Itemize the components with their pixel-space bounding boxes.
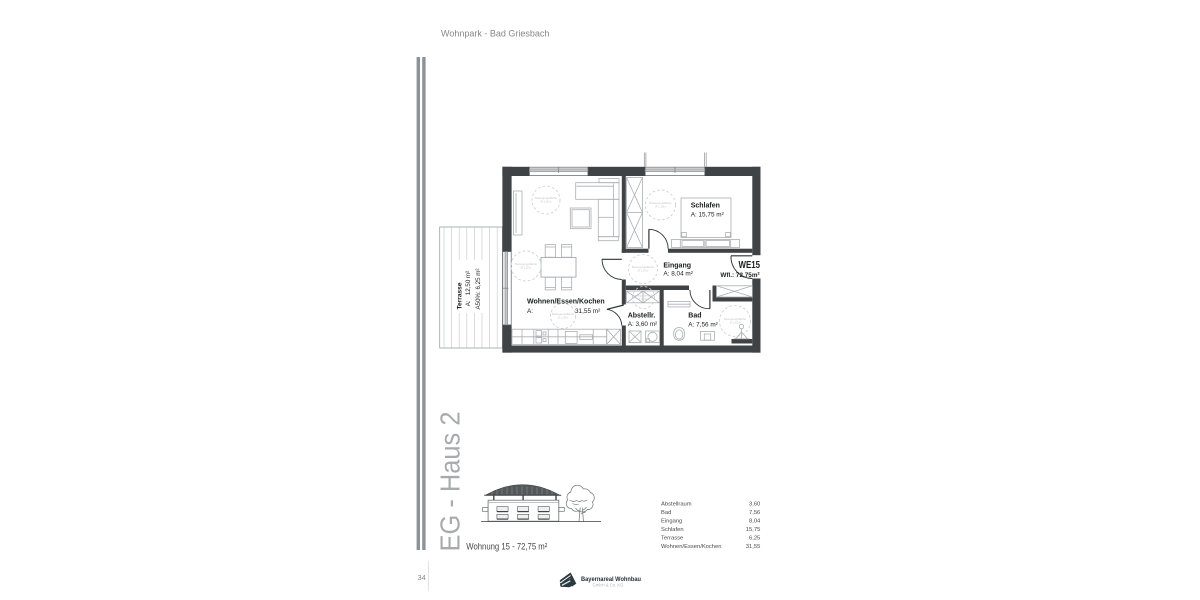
svg-text:Schlafen: Schlafen <box>691 202 720 209</box>
svg-text:A: 8,04 m²: A: 8,04 m² <box>663 271 692 278</box>
svg-text:Terrasse: Terrasse <box>661 535 683 541</box>
svg-text:A: 3,60 m²: A: 3,60 m² <box>628 321 657 328</box>
svg-text:3,60: 3,60 <box>749 502 760 508</box>
svg-text:Wohnpark - Bad Griesbach: Wohnpark - Bad Griesbach <box>441 29 549 39</box>
svg-text:8,04: 8,04 <box>749 519 761 525</box>
svg-text:7,56: 7,56 <box>749 510 760 516</box>
svg-text:Wohnung 15 - 72,75 m²: Wohnung 15 - 72,75 m² <box>466 541 547 552</box>
svg-text:Eingang: Eingang <box>663 263 691 270</box>
svg-text:Bad: Bad <box>661 510 671 516</box>
svg-text:34: 34 <box>418 573 426 582</box>
svg-text:Wfl.: 72,75m²: Wfl.: 72,75m² <box>720 272 760 279</box>
svg-text:Ø 1,20m: Ø 1,20m <box>638 297 649 301</box>
svg-text:Ø 1,20m: Ø 1,20m <box>558 316 569 320</box>
svg-text:A: 7,56 m²: A: 7,56 m² <box>688 322 717 329</box>
svg-text:Ø 1,20m: Ø 1,20m <box>638 269 649 273</box>
svg-text:A50%: 6,25 m²: A50%: 6,25 m² <box>475 269 482 310</box>
svg-text:A: 15,75 m²: A: 15,75 m² <box>691 212 724 219</box>
svg-text:Wohnen/Essen/Kochen: Wohnen/Essen/Kochen <box>527 299 605 306</box>
svg-text:Schlafen: Schlafen <box>661 527 684 533</box>
svg-text:Ø 1,20m: Ø 1,20m <box>655 205 666 209</box>
svg-text:EG - Haus 2: EG - Haus 2 <box>435 412 466 552</box>
svg-text:Terrasse: Terrasse <box>456 282 463 309</box>
svg-text:Ø 1,20m: Ø 1,20m <box>730 321 741 325</box>
svg-text:Ø 1,20m: Ø 1,20m <box>541 200 552 204</box>
svg-text:A:: A: <box>527 308 533 315</box>
svg-text:Wohnen/Essen/Kochen: Wohnen/Essen/Kochen <box>661 544 721 550</box>
svg-text:GmbH & Co. KG: GmbH & Co. KG <box>593 582 624 587</box>
svg-text:6,25: 6,25 <box>749 535 760 541</box>
svg-text:Abstellraum: Abstellraum <box>661 502 692 508</box>
svg-text:31,55 m²: 31,55 m² <box>575 308 600 315</box>
svg-text:WE15: WE15 <box>739 259 761 271</box>
svg-text:Ø 1,20m: Ø 1,20m <box>521 266 532 270</box>
svg-text:Eingang: Eingang <box>661 519 682 525</box>
svg-text:Abstellr.: Abstellr. <box>628 313 656 320</box>
svg-text:Bad: Bad <box>688 313 701 320</box>
svg-text:A: 12,50 m²: A: 12,50 m² <box>465 271 472 306</box>
svg-text:15,75: 15,75 <box>746 527 761 533</box>
svg-text:31,55: 31,55 <box>746 544 761 550</box>
